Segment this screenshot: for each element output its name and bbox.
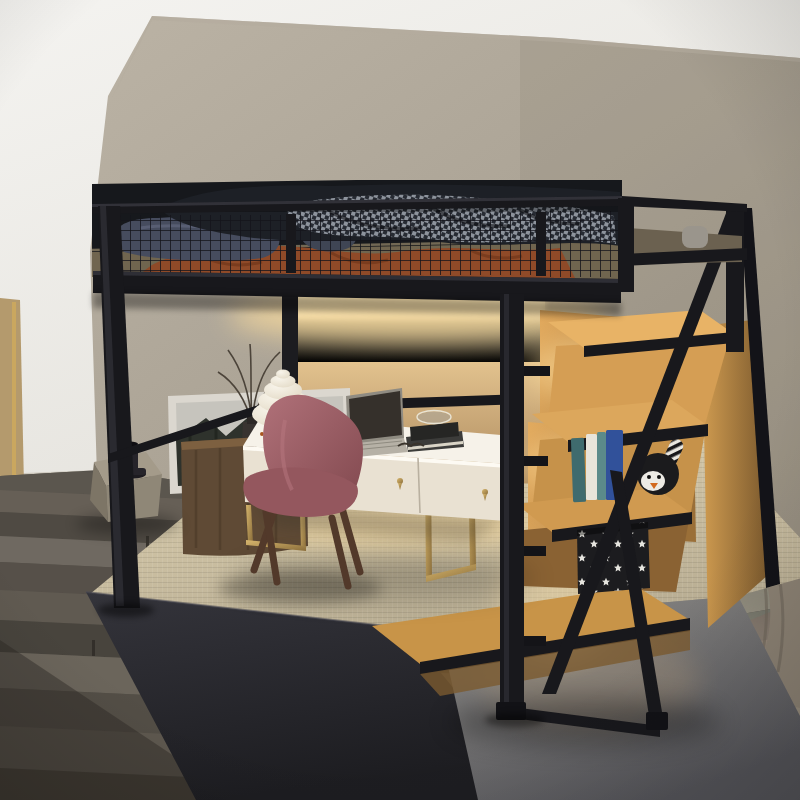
photo-stage <box>0 0 800 800</box>
loft-bed-room-photo <box>0 0 800 800</box>
vignette <box>0 0 800 800</box>
